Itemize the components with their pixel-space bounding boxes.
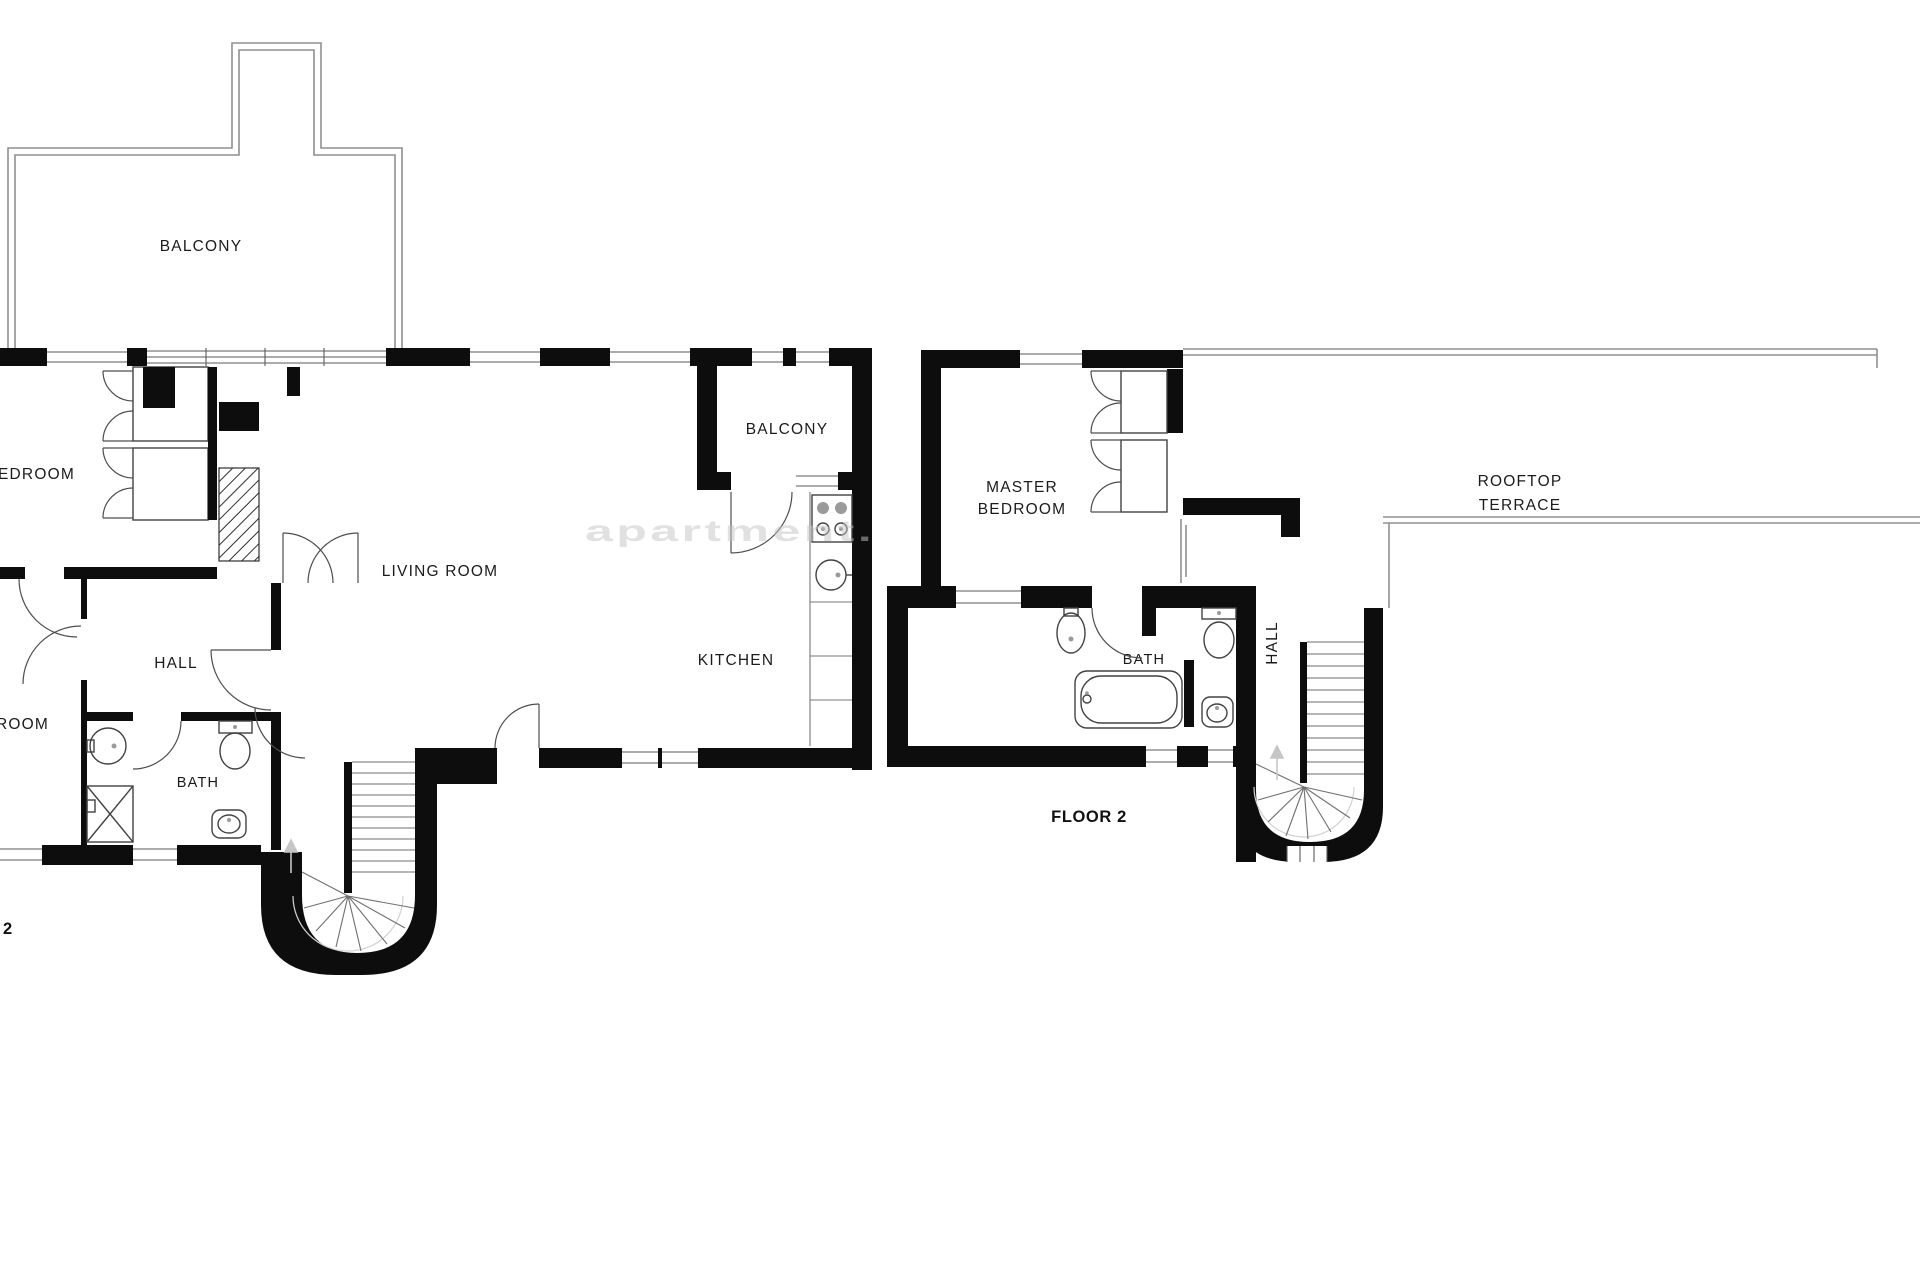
bathtub-fixture <box>1075 671 1182 728</box>
window <box>752 348 783 366</box>
floor2-rooftop-terrace: ROOFTOP TERRACE <box>1181 349 1920 608</box>
toilet-fixture <box>219 721 252 769</box>
window <box>0 845 42 865</box>
double-door-arcs <box>283 533 358 583</box>
bath-door-arc <box>133 721 181 769</box>
living-room-label: LIVING ROOM <box>382 563 499 580</box>
window <box>956 586 1021 608</box>
glazed-wall-under-balcony <box>147 348 386 366</box>
floor2-stairs <box>1236 608 1383 862</box>
floor1-east-wall <box>852 348 872 770</box>
floor2-plan: MASTER BEDROOM ROOFTOP TERRACE <box>887 349 1920 862</box>
window <box>796 348 829 366</box>
floor1-stairs <box>255 708 437 975</box>
shower-fixture <box>87 786 133 842</box>
window <box>1208 746 1233 767</box>
balcony-separator-wall <box>697 348 717 490</box>
balcony-outer-wall <box>8 43 402 348</box>
kitchen-sink-fixture <box>816 560 852 590</box>
floor1-number-label: 2 <box>3 920 13 938</box>
window <box>1020 350 1082 368</box>
balcony-inner-wall <box>15 50 395 348</box>
wall-pier <box>219 402 259 431</box>
floor1-chimney <box>219 402 259 561</box>
toilet2-fixture <box>1202 608 1236 658</box>
master-bedroom-label-line1: MASTER <box>986 479 1058 496</box>
hall2-label: HALL <box>1264 621 1281 665</box>
floor1-hall: HALL <box>0 567 281 850</box>
wall-stub <box>143 367 175 408</box>
floorplan-page: BALCONY <box>0 0 1920 1280</box>
bedroom-door-arc <box>19 579 77 637</box>
chimney-hatched-shaft <box>219 468 259 561</box>
watermark: apartment. <box>585 515 875 548</box>
floor1-bedroom2: ROOM <box>0 716 49 733</box>
bath-divider-wall <box>1184 660 1194 727</box>
window <box>610 348 690 366</box>
balcony-right-label: BALCONY <box>746 421 828 438</box>
terrace-door <box>1181 519 1186 583</box>
balcony-top-label: BALCONY <box>160 238 242 255</box>
floor2-hall: HALL <box>1264 621 1281 665</box>
stair2-newel-wall <box>1300 642 1307 783</box>
floor1-bath: BATH <box>0 712 271 865</box>
kitchen-label: KITCHEN <box>698 652 774 669</box>
closet-box <box>1121 440 1167 512</box>
bedroom-label: EDROOM <box>0 466 75 483</box>
floor1-plan: BALCONY <box>0 43 872 975</box>
closet-box <box>1121 371 1167 433</box>
window <box>470 348 540 366</box>
window <box>622 748 658 768</box>
terrace-label-line1: ROOFTOP <box>1478 473 1563 490</box>
window <box>662 748 698 768</box>
bidet-fixture <box>212 810 246 838</box>
floor1-top-wall <box>0 348 852 366</box>
floor2-caption: FLOOR 2 <box>1051 808 1127 826</box>
bath-label: BATH <box>177 775 219 791</box>
hall-label: HALL <box>154 655 198 672</box>
bedroom2-label: ROOM <box>0 716 49 733</box>
bath2-door-arc <box>1092 608 1142 658</box>
closet-side-wall <box>208 367 217 520</box>
living-room-door-arc <box>495 704 539 748</box>
stair-newel-wall <box>344 762 352 893</box>
stairwell-interior <box>302 738 415 953</box>
floor2-bath: BATH <box>887 608 1256 767</box>
bedroom2-door-arc <box>23 626 81 684</box>
window <box>47 348 127 366</box>
wall-stub <box>287 367 300 396</box>
master-bedroom-label-line2: BEDROOM <box>978 501 1067 518</box>
floor2-master-bedroom: MASTER BEDROOM <box>978 371 1167 518</box>
closet-door-arcs <box>103 371 133 518</box>
terrace-label-line2: TERRACE <box>1479 497 1561 514</box>
window <box>1287 846 1327 862</box>
floor1-living-room: LIVING ROOM <box>283 533 498 583</box>
floor1-balcony-top: BALCONY <box>8 43 402 348</box>
closet-door-arcs <box>1091 371 1121 512</box>
window <box>796 472 838 490</box>
floorplan-canvas: BALCONY <box>0 0 1920 1280</box>
wall-step-block <box>437 748 497 784</box>
window <box>1146 746 1177 767</box>
window <box>133 845 177 865</box>
closet-box <box>133 448 208 520</box>
bathroom2-sink-fixture <box>1057 608 1085 653</box>
hall-door-arc <box>211 650 271 710</box>
bath2-label: BATH <box>1123 652 1165 668</box>
bidet2-fixture <box>1202 697 1233 727</box>
bathroom-sink-fixture <box>87 728 126 764</box>
